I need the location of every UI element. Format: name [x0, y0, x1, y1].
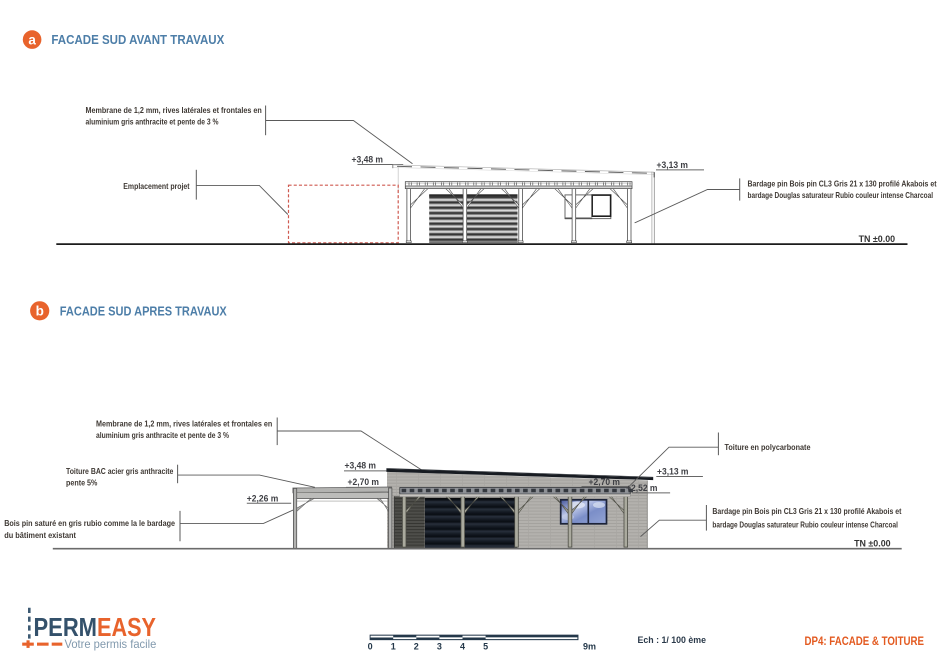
svg-text:+2,26 m: +2,26 m [247, 493, 278, 503]
svg-text:3: 3 [437, 641, 442, 651]
svg-text:+2,70 m: +2,70 m [348, 477, 380, 487]
svg-text:Emplacement projet: Emplacement projet [123, 181, 189, 191]
svg-text:aluminium gris anthracite et p: aluminium gris anthracite et pente de 3 … [96, 430, 229, 440]
svg-text:TN ±0.00: TN ±0.00 [854, 539, 891, 549]
svg-text:pente 5%: pente 5% [66, 478, 98, 488]
svg-text:du bâtiment existant: du bâtiment existant [4, 530, 76, 540]
svg-text:DP4: FACADE & TOITURE: DP4: FACADE & TOITURE [805, 634, 925, 648]
svg-text:aluminium gris anthracite et p: aluminium gris anthracite et pente de 3 … [86, 116, 219, 126]
svg-text:Toiture BAC acier gris anthrac: Toiture BAC acier gris anthracite [66, 466, 174, 476]
svg-text:9m: 9m [583, 641, 596, 651]
svg-text:+2,70 m: +2,70 m [589, 477, 621, 487]
svg-text:Bois pin saturé en gris rubio: Bois pin saturé en gris rubio comme la l… [4, 518, 175, 528]
svg-text:+3,13 m: +3,13 m [657, 467, 689, 477]
svg-text:TN ±0.00: TN ±0.00 [859, 234, 896, 244]
svg-text:bardage Douglas saturateur Rub: bardage Douglas saturateur Rubio couleur… [748, 190, 934, 200]
svg-text:+3,48 m: +3,48 m [345, 460, 377, 470]
svg-text:0: 0 [368, 641, 373, 651]
svg-text:Bardage pin Bois pin CL3 Gris: Bardage pin Bois pin CL3 Gris 21 x 130 p… [748, 178, 937, 188]
svg-text:a: a [28, 32, 36, 47]
svg-text:bardage Douglas saturateur Rub: bardage Douglas saturateur Rubio couleur… [712, 519, 898, 529]
svg-text:FACADE SUD AVANT TRAVAUX: FACADE SUD AVANT TRAVAUX [51, 33, 224, 47]
svg-text:Votre permis facile: Votre permis facile [65, 638, 157, 651]
svg-text:Membrane de 1,2 mm, rives laté: Membrane de 1,2 mm, rives latérales et f… [96, 419, 272, 429]
svg-text:Membrane de 1,2 mm, rives laté: Membrane de 1,2 mm, rives latérales et f… [86, 105, 262, 115]
svg-text:Ech : 1/ 100 ème: Ech : 1/ 100 ème [638, 635, 707, 646]
svg-text:1: 1 [391, 641, 396, 651]
svg-text:Toiture en polycarbonate: Toiture en polycarbonate [725, 442, 811, 452]
svg-text:4: 4 [460, 641, 465, 651]
svg-text:5: 5 [483, 641, 488, 651]
svg-text:Bardage pin Bois pin CL3 Gris: Bardage pin Bois pin CL3 Gris 21 x 130 p… [712, 506, 901, 516]
svg-text:FACADE SUD APRES TRAVAUX: FACADE SUD APRES TRAVAUX [60, 304, 228, 318]
svg-text:+2,52 m: +2,52 m [626, 483, 658, 493]
svg-text:+3,13 m: +3,13 m [657, 160, 689, 170]
svg-text:2: 2 [414, 641, 419, 651]
svg-text:+3,48 m: +3,48 m [352, 154, 384, 164]
svg-text:b: b [36, 304, 44, 319]
